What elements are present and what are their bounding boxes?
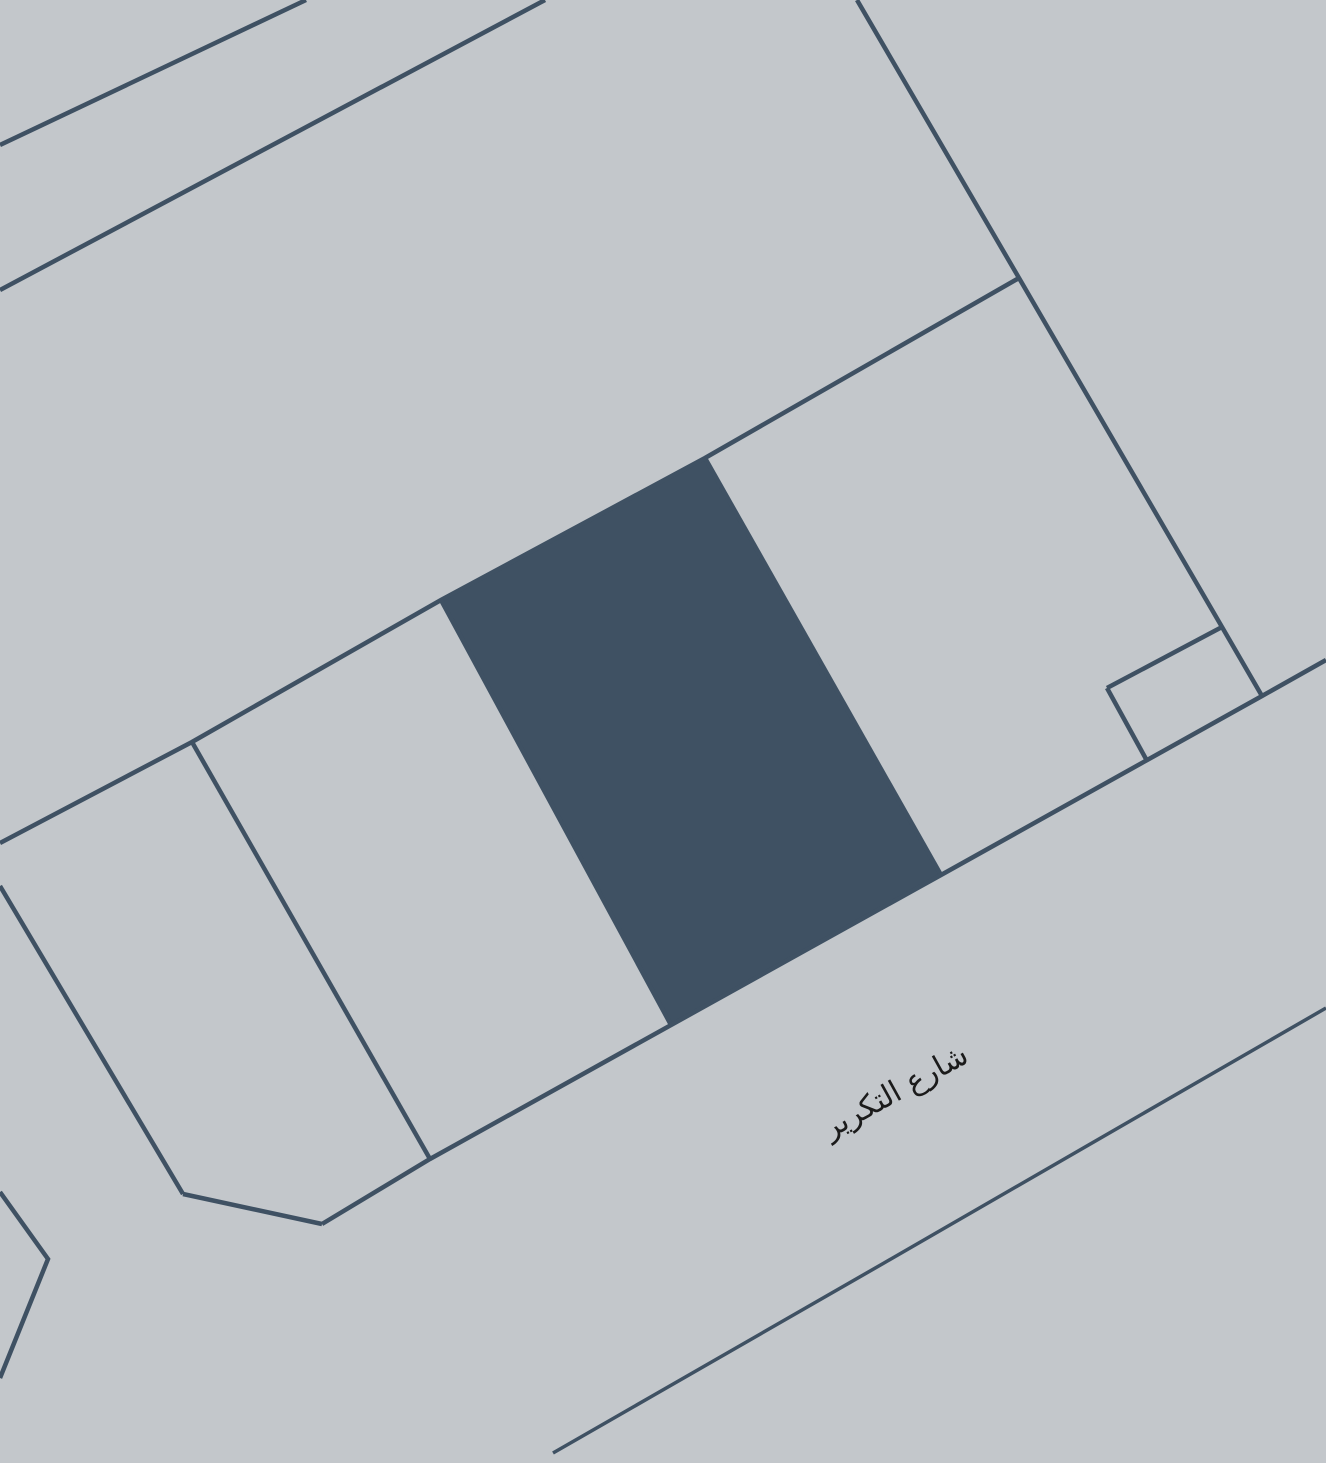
map-canvas[interactable]: شارع التكرير [0,0,1326,1463]
map-view[interactable]: شارع التكرير [0,0,1326,1463]
